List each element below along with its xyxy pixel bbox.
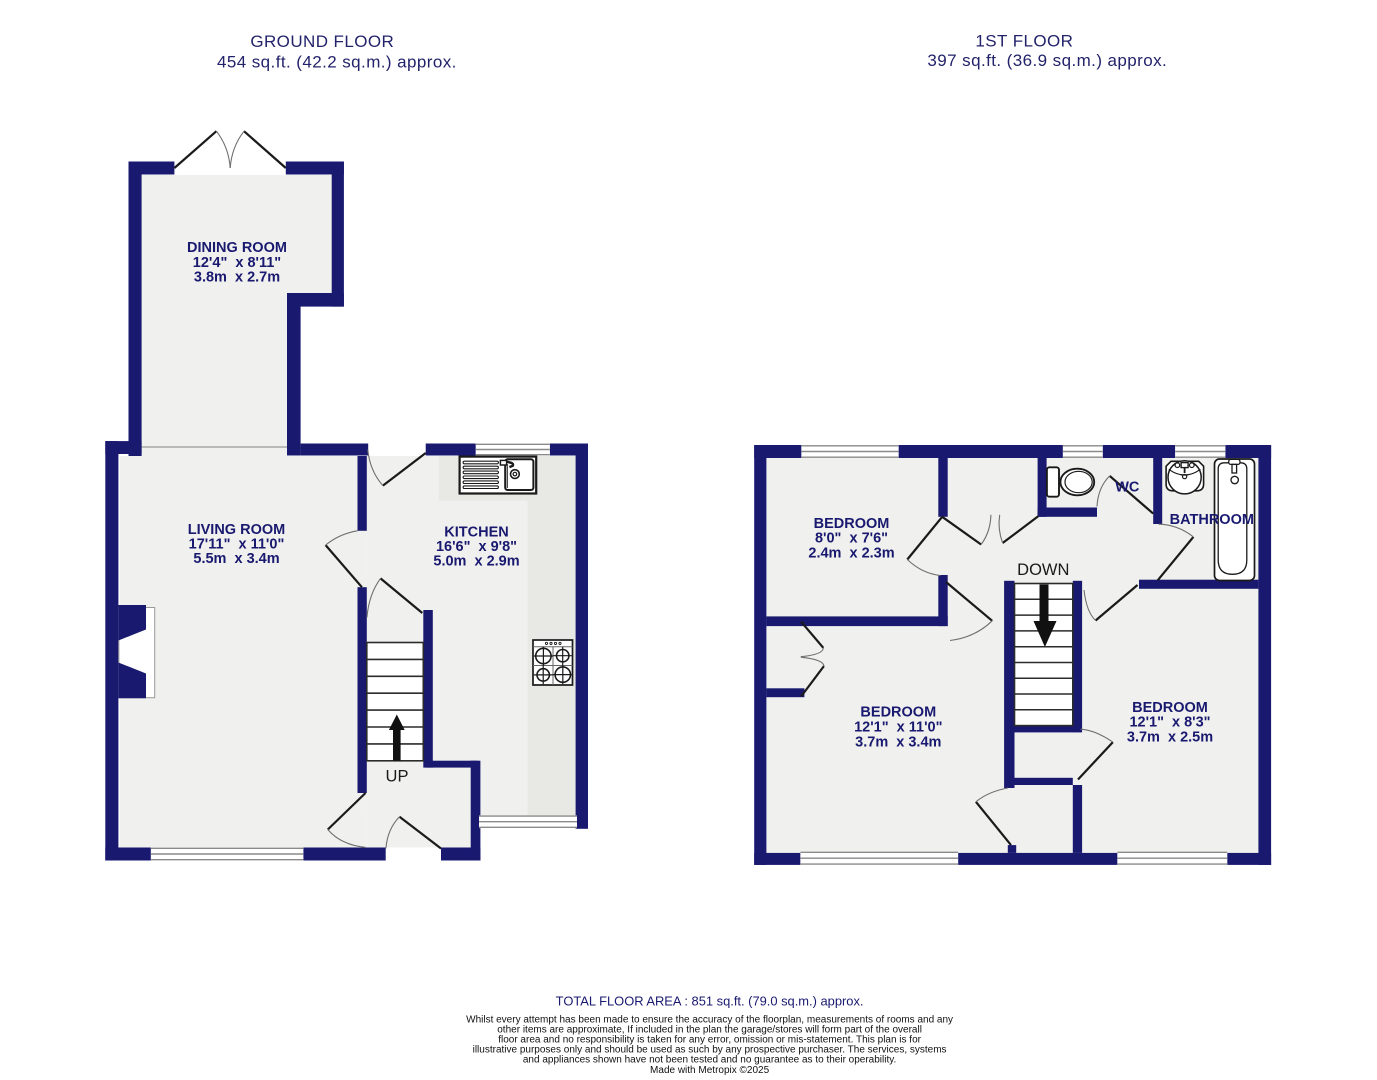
svg-text:BEDROOM: BEDROOM xyxy=(860,705,936,721)
svg-text:3.7m x 3.4m: 3.7m x 3.4m xyxy=(855,735,941,751)
svg-text:17'11" x 11'0": 17'11" x 11'0" xyxy=(189,537,285,553)
svg-text:LIVING ROOM: LIVING ROOM xyxy=(188,522,285,538)
svg-text:TOTAL FLOOR AREA : 851 sq.ft.: TOTAL FLOOR AREA : 851 sq.ft. (79.0 sq.m… xyxy=(556,993,864,1008)
svg-text:12'1" x 8'3": 12'1" x 8'3" xyxy=(1129,715,1210,731)
svg-text:12'4" x 8'11": 12'4" x 8'11" xyxy=(193,255,281,271)
svg-text:WC: WC xyxy=(1115,480,1140,496)
svg-text:BEDROOM: BEDROOM xyxy=(814,516,890,532)
svg-text:1ST FLOOR: 1ST FLOOR xyxy=(975,32,1073,51)
svg-text:Made with Metropix ©2025: Made with Metropix ©2025 xyxy=(650,1065,770,1076)
svg-text:BEDROOM: BEDROOM xyxy=(1132,700,1208,716)
svg-text:5.5m x 3.4m: 5.5m x 3.4m xyxy=(193,551,279,567)
svg-text:397 sq.ft. (36.9 sq.m.) approx: 397 sq.ft. (36.9 sq.m.) approx. xyxy=(927,51,1167,70)
svg-text:DINING ROOM: DINING ROOM xyxy=(187,240,287,256)
svg-text:3.7m x 2.5m: 3.7m x 2.5m xyxy=(1127,729,1213,745)
svg-text:BATHROOM: BATHROOM xyxy=(1170,512,1254,528)
svg-text:8'0" x 7'6": 8'0" x 7'6" xyxy=(815,531,888,547)
svg-text:16'6" x 9'8": 16'6" x 9'8" xyxy=(436,539,517,555)
svg-text:454 sq.ft. (42.2 sq.m.) approx: 454 sq.ft. (42.2 sq.m.) approx. xyxy=(217,53,457,72)
svg-text:DOWN: DOWN xyxy=(1017,561,1069,579)
svg-text:UP: UP xyxy=(386,768,409,786)
svg-text:12'1" x 11'0": 12'1" x 11'0" xyxy=(854,720,942,736)
svg-text:5.0m x 2.9m: 5.0m x 2.9m xyxy=(433,554,519,570)
svg-text:GROUND FLOOR: GROUND FLOOR xyxy=(250,32,394,51)
svg-text:KITCHEN: KITCHEN xyxy=(444,524,508,540)
svg-text:3.8m x 2.7m: 3.8m x 2.7m xyxy=(194,270,280,286)
svg-text:2.4m x 2.3m: 2.4m x 2.3m xyxy=(808,545,894,561)
